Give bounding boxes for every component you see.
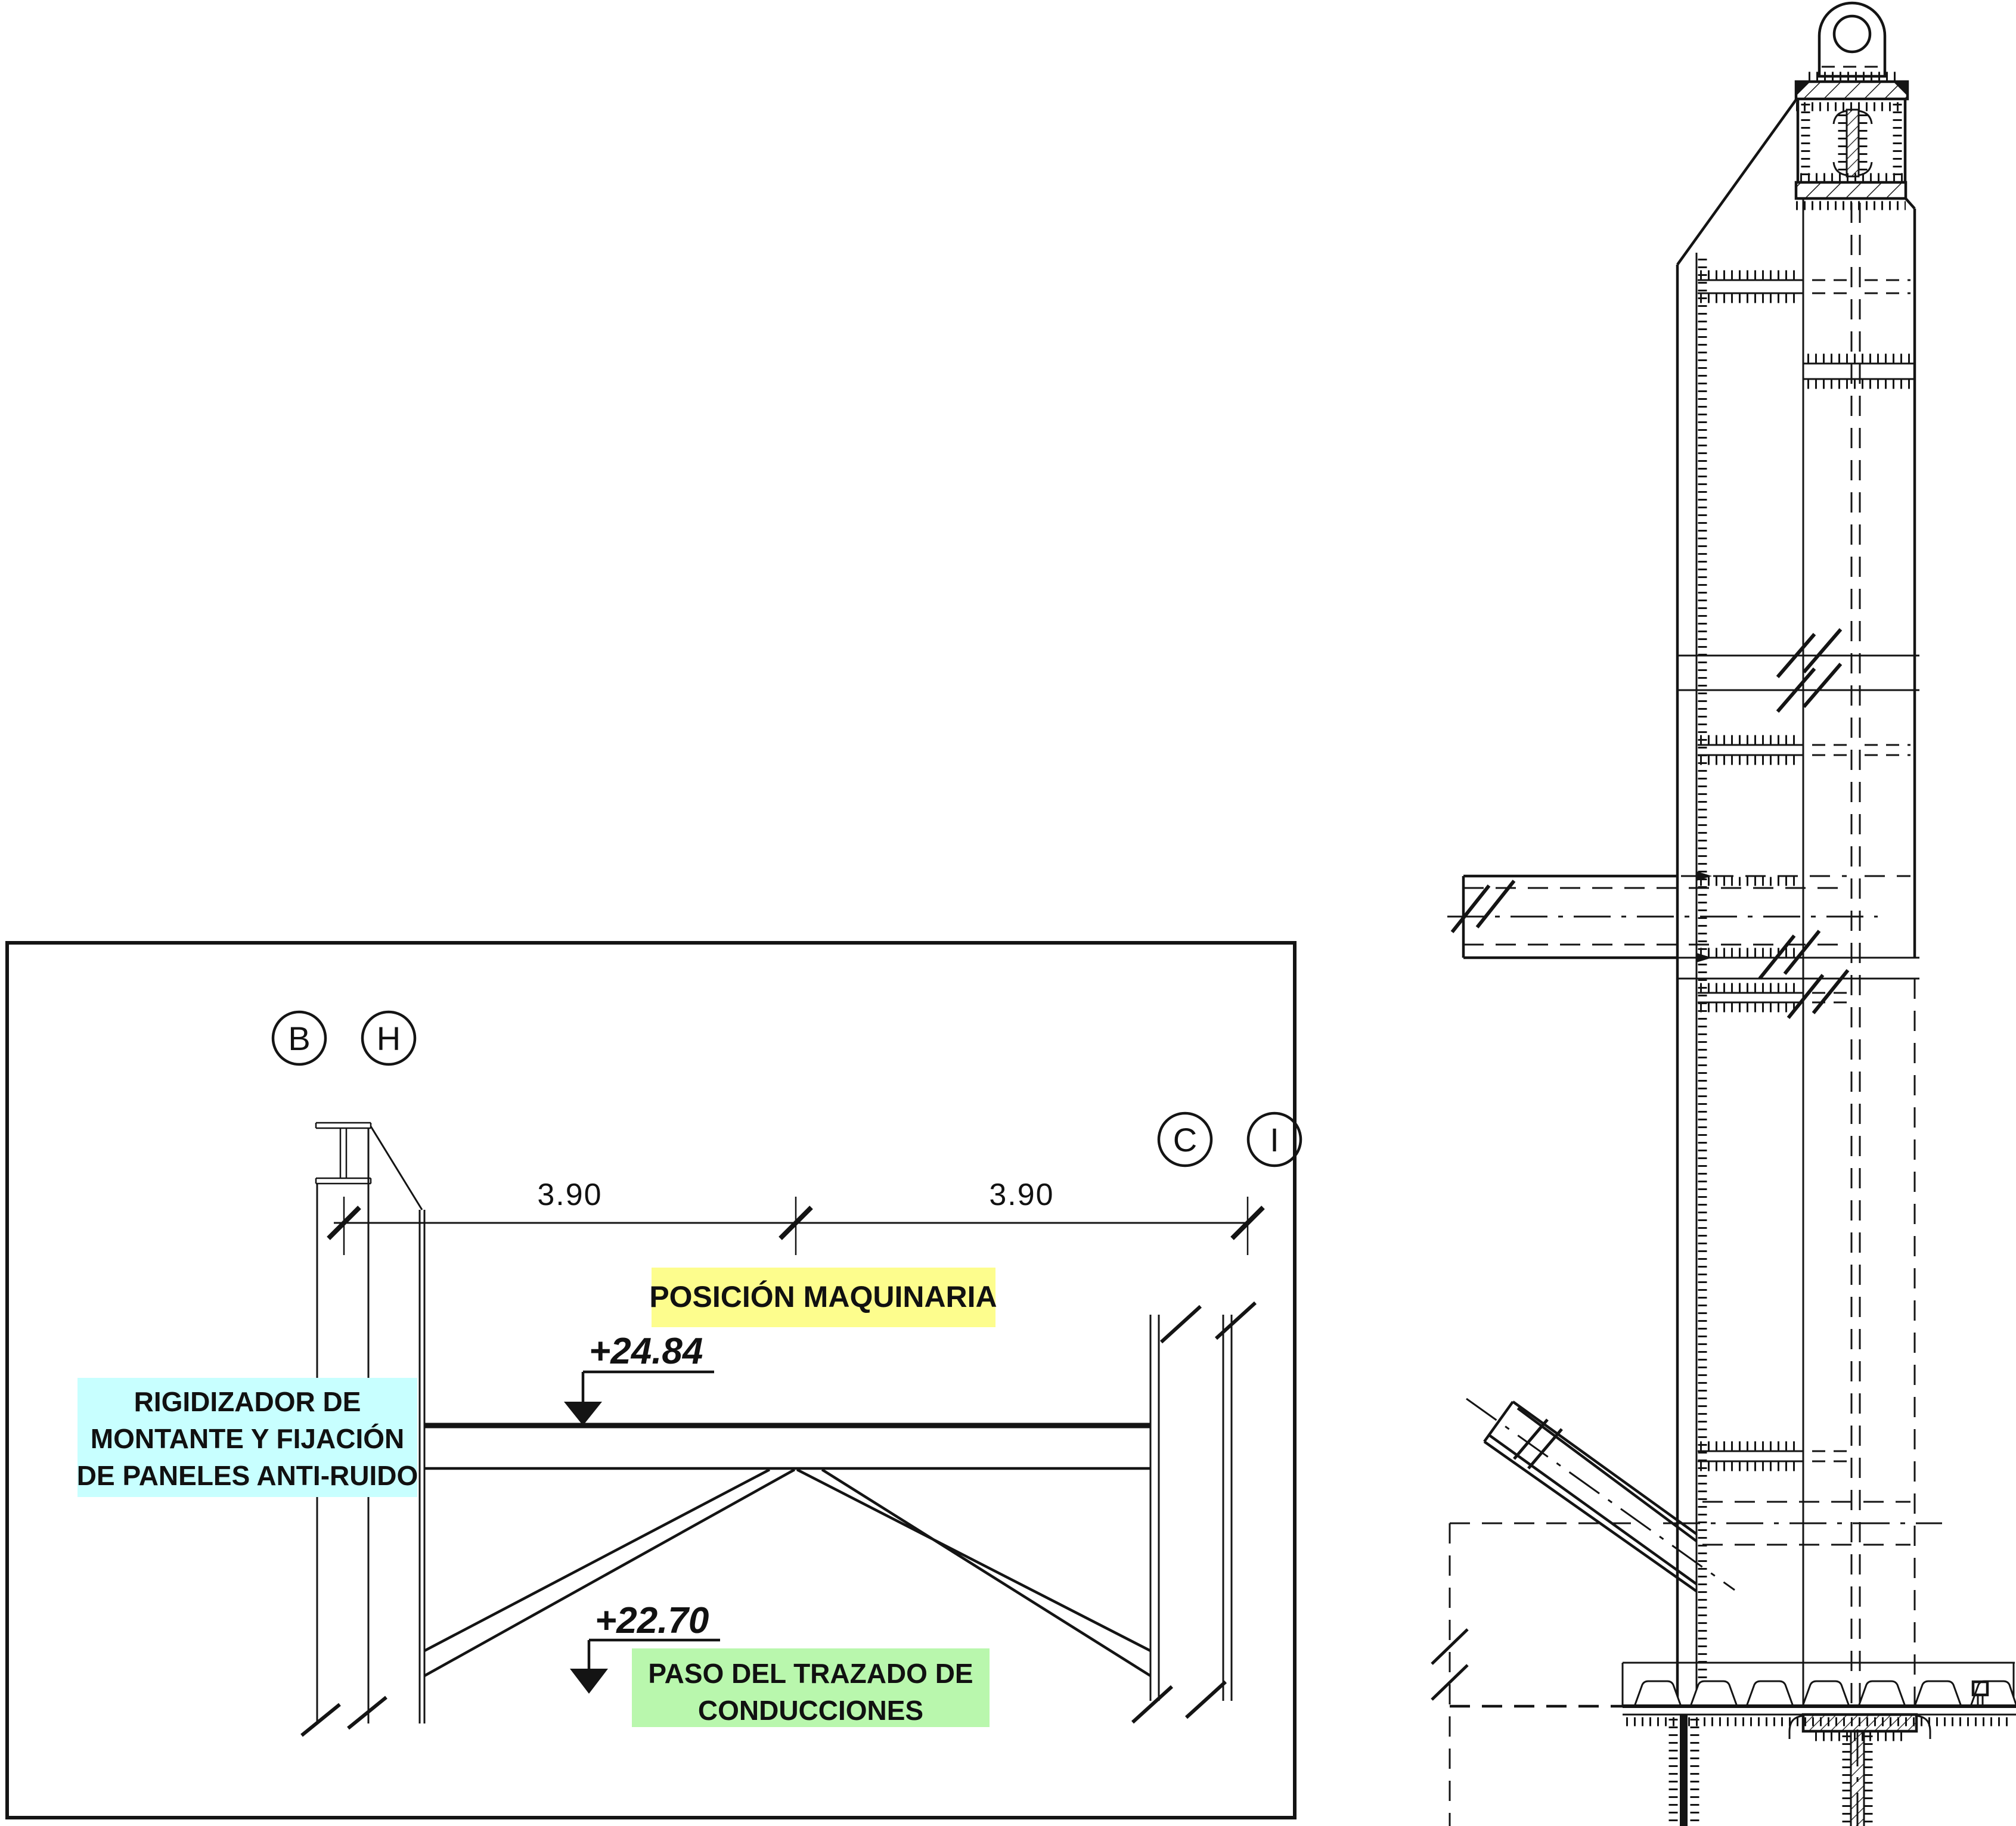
column-body — [1677, 198, 1915, 1706]
chevron-braces — [424, 1470, 1150, 1676]
grid-bubble-i: I — [1248, 1113, 1301, 1166]
internal-stiffeners — [1698, 358, 1915, 1467]
elevation-view — [1432, 3, 2016, 1826]
level-marker-upper: +24.84 — [564, 1331, 714, 1426]
note-text-line3: DE PANELES ANTI-RUIDO — [77, 1460, 418, 1491]
grid-bubble-c: C — [1159, 1113, 1211, 1166]
weld-mark-icon — [1696, 953, 1712, 962]
deck-stiffener — [1673, 1715, 1695, 1826]
note-text-line2: MONTANTE Y FIJACIÓN — [91, 1423, 404, 1454]
level-triangle-icon — [570, 1669, 608, 1694]
level-triangle-icon — [564, 1402, 602, 1426]
dimension-line: 3.90 3.90 — [328, 1178, 1263, 1255]
main-beam — [1447, 871, 1919, 962]
grid-bubble-label: C — [1173, 1121, 1197, 1159]
grid-bubble-b: B — [273, 1012, 325, 1064]
deck-assembly — [1509, 1663, 2016, 1826]
note-text-line1: PASO DEL TRAZADO DE — [648, 1658, 973, 1689]
note-conduits: PASO DEL TRAZADO DE CONDUCCIONES — [632, 1648, 990, 1727]
hidden-web-centerline — [1851, 203, 1860, 1704]
cap-plate — [1796, 76, 1908, 107]
drawing-sheet: 3.90 3.90 B H C I +24.84 — [0, 0, 2016, 1826]
note-text-line1: RIGIDIZADOR DE — [134, 1386, 361, 1417]
grid-bubble-h: H — [362, 1012, 415, 1064]
floor-beam — [424, 1426, 1150, 1468]
note-text-line2: CONDUCCIONES — [698, 1695, 923, 1726]
lifting-lug — [1819, 3, 1885, 76]
diagonal-brace — [1466, 1399, 1735, 1591]
break-mark — [1514, 1420, 1562, 1468]
splice-joints — [1677, 629, 1919, 1018]
head-section — [1796, 99, 1906, 206]
break-mark — [302, 1697, 386, 1735]
metal-deck-flutes — [1634, 1681, 2016, 1706]
level-value-upper: +24.84 — [589, 1331, 703, 1372]
level-value-lower: +22.70 — [595, 1600, 709, 1641]
detail-right-post — [1133, 1303, 1255, 1722]
dimension-label-right: 3.90 — [989, 1178, 1054, 1212]
grid-bubble-label: I — [1270, 1121, 1279, 1159]
detail-view: 3.90 3.90 B H C I +24.84 — [7, 943, 1301, 1818]
lug-hole — [1834, 16, 1870, 52]
deck-girder-section — [1789, 1715, 1930, 1826]
drawing-canvas: 3.90 3.90 B H C I +24.84 — [0, 0, 2016, 1826]
note-text: POSICIÓN MAQUINARIA — [649, 1280, 997, 1313]
brace-centerline — [1466, 1399, 1735, 1590]
grid-bubble-label: H — [377, 1020, 401, 1057]
note-stiffener: RIGIDIZADOR DE MONTANTE Y FIJACIÓN DE PA… — [77, 1378, 418, 1497]
note-machinery: POSICIÓN MAQUINARIA — [649, 1268, 997, 1327]
dimension-label-left: 3.90 — [537, 1178, 602, 1212]
grid-bubble-label: B — [288, 1020, 310, 1057]
